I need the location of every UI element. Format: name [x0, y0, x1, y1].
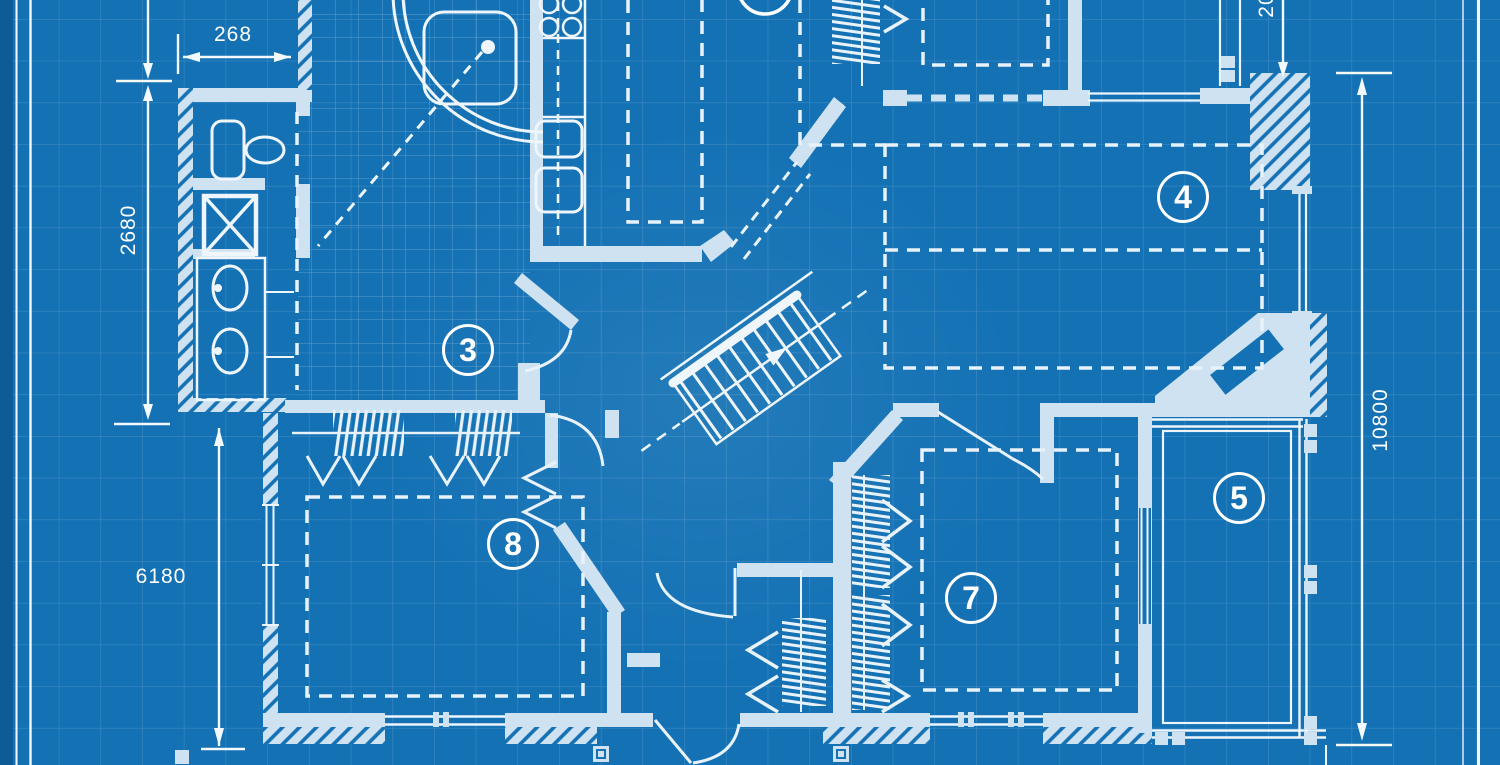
- room-label-5: 5: [1213, 472, 1265, 524]
- dimension-6180: 6180: [131, 565, 191, 589]
- room-label-8: 8: [487, 518, 539, 570]
- room-label-7: 7: [945, 572, 997, 624]
- room-number-4: 4: [1174, 179, 1192, 216]
- room-label-3: 3: [442, 324, 494, 376]
- room-number-8: 8: [504, 526, 522, 563]
- bathroom-tile-floor: [298, 0, 530, 400]
- blueprint-canvas: 3 4 5 7 8 268 2680 6180 10800 20: [0, 0, 1500, 765]
- dimension-2680: 2680: [117, 195, 141, 265]
- room-number-5: 5: [1230, 480, 1248, 517]
- dimension-268: 268: [205, 23, 261, 47]
- room-number-3: 3: [459, 332, 477, 369]
- room-label-4: 4: [1157, 171, 1209, 223]
- dimension-10800: 10800: [1369, 380, 1393, 460]
- floorplan-drawing: [0, 0, 1500, 765]
- dimension-partial-top: 20: [1255, 0, 1279, 25]
- room-number-7: 7: [962, 580, 980, 617]
